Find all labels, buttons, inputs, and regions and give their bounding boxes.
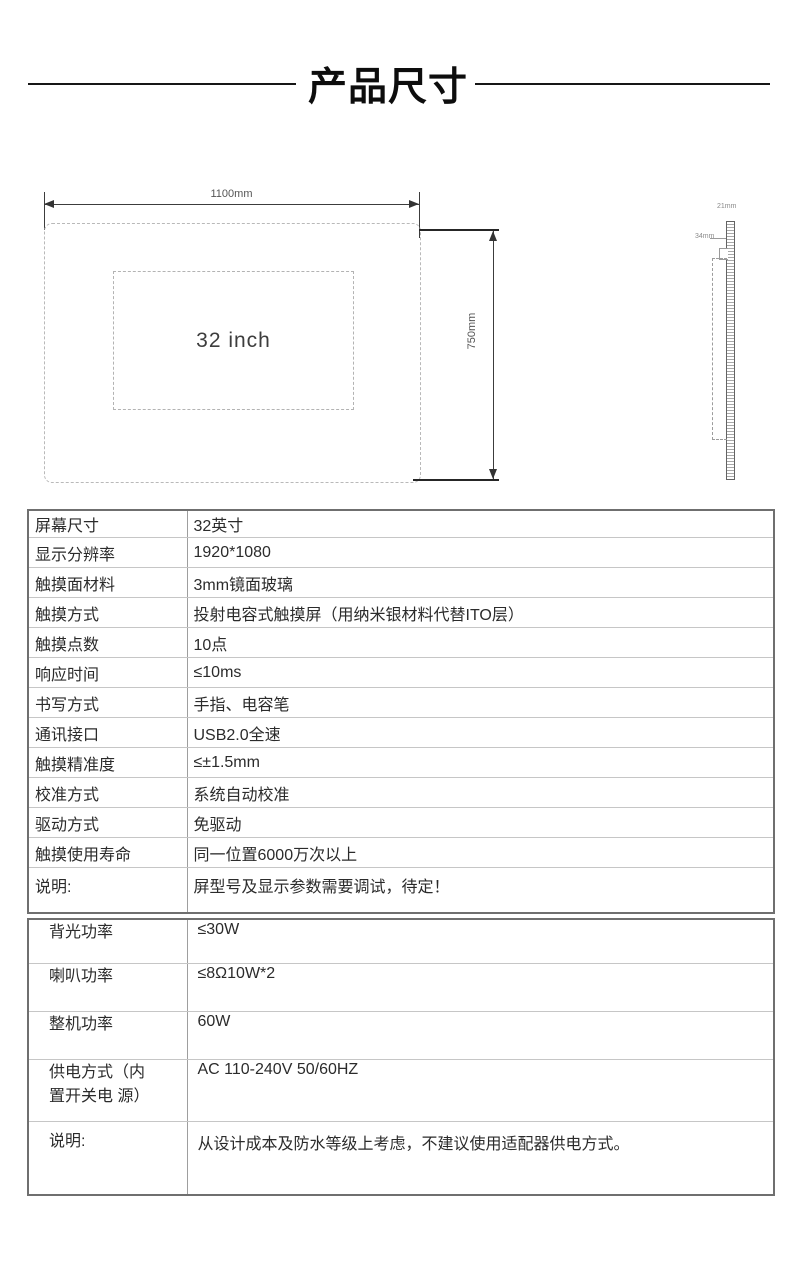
spec-label: 触摸点数 bbox=[28, 628, 187, 658]
arrowhead-left-icon bbox=[44, 200, 54, 208]
spec-value: 3mm镜面玻璃 bbox=[187, 568, 774, 598]
spec-row: 触摸方式 投射电容式触摸屏（用纳米银材料代替ITO层） bbox=[28, 598, 774, 628]
arrowhead-up-icon bbox=[489, 231, 497, 241]
height-dimension-label: 750mm bbox=[466, 301, 478, 361]
side-top-dimension-label: 21mm bbox=[717, 203, 736, 210]
spec-label: 显示分辨率 bbox=[28, 538, 187, 568]
spec-value: 免驱动 bbox=[187, 808, 774, 838]
spec-row: 校准方式 系统自动校准 bbox=[28, 778, 774, 808]
spec-label: 喇叭功率 bbox=[28, 963, 187, 1011]
spec-row: 屏幕尺寸 32英寸 bbox=[28, 510, 774, 538]
spec-label: 校准方式 bbox=[28, 778, 187, 808]
spec-label: 触摸使用寿命 bbox=[28, 838, 187, 868]
spec-label: 触摸方式 bbox=[28, 598, 187, 628]
spec-row: 触摸使用寿命 同一位置6000万次以上 bbox=[28, 838, 774, 868]
spec-value: ≤10ms bbox=[187, 658, 774, 688]
spec-label: 通讯接口 bbox=[28, 718, 187, 748]
spec-label: 说明: bbox=[28, 868, 187, 913]
spec-value: 投射电容式触摸屏（用纳米银材料代替ITO层） bbox=[187, 598, 774, 628]
spec-value: ≤±1.5mm bbox=[187, 748, 774, 778]
spec-value: 同一位置6000万次以上 bbox=[187, 838, 774, 868]
spec-table: 屏幕尺寸 32英寸 显示分辨率 1920*1080 触摸面材料 3mm镜面玻璃 … bbox=[27, 509, 775, 914]
spec-value: ≤30W bbox=[187, 919, 774, 963]
extension-line-bottom-right bbox=[413, 479, 499, 481]
spec-row: 喇叭功率 ≤8Ω10W*2 bbox=[28, 963, 774, 1011]
spec-row: 触摸点数 10点 bbox=[28, 628, 774, 658]
spec-value: 从设计成本及防水等级上考虑，不建议使用适配器供电方式。 bbox=[187, 1121, 774, 1195]
power-table: 背光功率 ≤30W 喇叭功率 ≤8Ω10W*2 整机功率 60W 供电方式（内 … bbox=[27, 918, 775, 1196]
spec-row: 触摸面材料 3mm镜面玻璃 bbox=[28, 568, 774, 598]
spec-row: 显示分辨率 1920*1080 bbox=[28, 538, 774, 568]
side-leader-line bbox=[710, 238, 726, 239]
spec-row: 通讯接口 USB2.0全速 bbox=[28, 718, 774, 748]
extension-tick-left bbox=[44, 192, 45, 230]
screen-area-outline: 32 inch bbox=[113, 271, 354, 410]
spec-label: 触摸精准度 bbox=[28, 748, 187, 778]
spec-label: 背光功率 bbox=[28, 919, 187, 963]
width-dimension-label: 1100mm bbox=[44, 188, 419, 200]
height-dimension-line bbox=[493, 231, 494, 479]
spec-label: 驱动方式 bbox=[28, 808, 187, 838]
spec-row: 响应时间 ≤10ms bbox=[28, 658, 774, 688]
spec-value: 32英寸 bbox=[187, 510, 774, 538]
spec-row: 驱动方式 免驱动 bbox=[28, 808, 774, 838]
spec-label: 说明: bbox=[28, 1121, 187, 1195]
arrowhead-down-icon bbox=[489, 469, 497, 479]
spec-label: 整机功率 bbox=[28, 1011, 187, 1059]
screen-size-label: 32 inch bbox=[196, 329, 271, 353]
spec-label: 触摸面材料 bbox=[28, 568, 187, 598]
page-title: 产品尺寸 bbox=[296, 56, 480, 112]
spec-label: 响应时间 bbox=[28, 658, 187, 688]
spec-row: 说明: 屏型号及显示参数需要调试，待定！ bbox=[28, 868, 774, 913]
spec-value: 1920*1080 bbox=[187, 538, 774, 568]
spec-label: 供电方式（内 置开关电 源） bbox=[28, 1059, 187, 1121]
spec-value: ≤8Ω10W*2 bbox=[187, 963, 774, 1011]
spec-value: AC 110-240V 50/60HZ bbox=[187, 1059, 774, 1121]
spec-value: 10点 bbox=[187, 628, 774, 658]
spec-value: 手指、电容笔 bbox=[187, 688, 774, 718]
arrowhead-right-icon bbox=[409, 200, 419, 208]
title-rule-left bbox=[28, 83, 296, 85]
spec-row: 供电方式（内 置开关电 源） AC 110-240V 50/60HZ bbox=[28, 1059, 774, 1121]
spec-row: 说明: 从设计成本及防水等级上考虑，不建议使用适配器供电方式。 bbox=[28, 1121, 774, 1195]
title-rule-right bbox=[475, 83, 770, 85]
spec-value: 系统自动校准 bbox=[187, 778, 774, 808]
spec-label: 书写方式 bbox=[28, 688, 187, 718]
spec-row: 背光功率 ≤30W bbox=[28, 919, 774, 963]
extension-line-top-right bbox=[419, 229, 499, 231]
spec-label: 屏幕尺寸 bbox=[28, 510, 187, 538]
spec-row: 书写方式 手指、电容笔 bbox=[28, 688, 774, 718]
width-dimension-line bbox=[44, 204, 419, 205]
product-spec-page: 产品尺寸 1100mm 32 inch 750mm 21mm 34mm 屏幕尺寸… bbox=[0, 0, 804, 1265]
spec-row: 触摸精准度 ≤±1.5mm bbox=[28, 748, 774, 778]
side-view-back-box bbox=[712, 258, 727, 440]
spec-row: 整机功率 60W bbox=[28, 1011, 774, 1059]
spec-value: USB2.0全速 bbox=[187, 718, 774, 748]
spec-value: 屏型号及显示参数需要调试，待定！ bbox=[187, 868, 774, 913]
spec-value: 60W bbox=[187, 1011, 774, 1059]
